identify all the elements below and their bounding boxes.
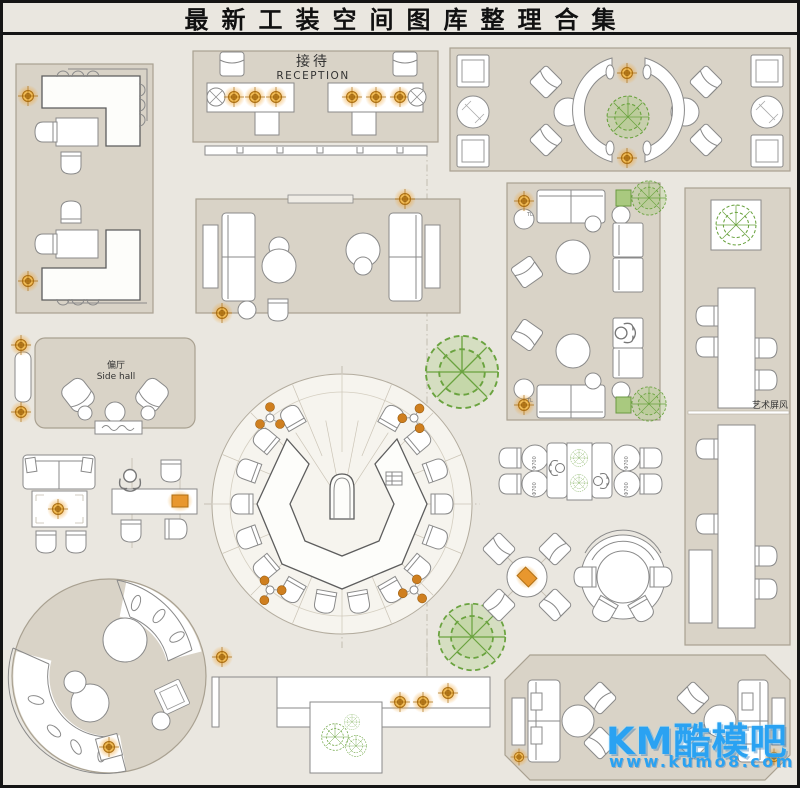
- downlight-icon: [394, 188, 416, 210]
- side-table: [512, 698, 525, 745]
- downlight-icon: [223, 86, 245, 108]
- zone-right-column: 艺术屏风: [685, 188, 790, 645]
- round-table: [751, 96, 783, 128]
- long-table: [718, 425, 755, 628]
- sofa: [222, 213, 255, 301]
- counter: [277, 677, 490, 727]
- booth-bench: [592, 443, 612, 498]
- chair: [650, 567, 672, 587]
- dining-table: [597, 551, 649, 603]
- tl-label: TL: [526, 212, 533, 218]
- downlight-icon: [365, 86, 387, 108]
- bench: [15, 352, 31, 402]
- fan-symbol: [207, 88, 225, 106]
- table-size-label: Φ700: [624, 482, 630, 495]
- table-lamp-icon: [513, 190, 535, 212]
- chair: [35, 234, 57, 254]
- art-screen: [688, 411, 789, 414]
- zone-reception: 接待 RECEPTION: [193, 51, 438, 155]
- zone-square-dining: [482, 532, 572, 622]
- chair: [640, 474, 662, 494]
- chair: [61, 201, 81, 223]
- chair: [755, 579, 777, 599]
- armchair: [751, 55, 783, 87]
- chair: [696, 337, 718, 357]
- stool: [105, 402, 125, 422]
- downlight-icon: [10, 334, 32, 356]
- coffee-table: [262, 249, 296, 283]
- downlight-icon: [389, 691, 411, 713]
- zone-office-topleft: [16, 64, 153, 313]
- plant: [632, 181, 666, 215]
- floorplan-collage-page: 最新工装空间图库整理合集: [0, 0, 800, 788]
- sofa: [389, 213, 422, 301]
- downlight-icon: [98, 736, 120, 758]
- zone-side-hall: 偏厅 Side hall: [10, 334, 195, 434]
- downlight-icon: [341, 86, 363, 108]
- downlight-icon: [211, 646, 233, 668]
- chair: [66, 531, 86, 553]
- chair: [755, 370, 777, 390]
- partition: [212, 677, 219, 727]
- zone-round-dining: [574, 530, 672, 624]
- lectern: [386, 472, 402, 485]
- downlight-icon: [265, 86, 287, 108]
- downlight-icon: [510, 748, 529, 767]
- chair: [574, 567, 596, 587]
- zone-booth-dining: Φ700 Φ700 Φ700 Φ700: [499, 443, 662, 500]
- chair: [755, 546, 777, 566]
- downlight-icon: [17, 270, 39, 292]
- page-title: 最新工装空间图库整理合集: [3, 3, 797, 35]
- downlight-icon: [244, 86, 266, 108]
- zone-lounge-topright: [450, 48, 790, 171]
- side-table: [203, 225, 218, 288]
- reception-label-cn: 接待: [296, 53, 330, 70]
- chair: [499, 448, 521, 468]
- chair: [431, 494, 453, 514]
- return-desk: [56, 230, 98, 258]
- armchair: [751, 135, 783, 167]
- sofa: [537, 385, 605, 418]
- round-table: [103, 618, 147, 662]
- plant: [607, 96, 649, 138]
- zone-desk-left: [112, 458, 197, 548]
- zone-circle-lounge: [8, 579, 206, 773]
- chair: [165, 519, 187, 539]
- downlight-icon: [437, 682, 459, 704]
- chair: [121, 520, 141, 542]
- chair: [61, 152, 81, 174]
- table-size-label: Φ700: [532, 456, 538, 469]
- downlight-icon: [47, 498, 69, 520]
- round-table: [556, 334, 590, 368]
- downlight-icon: [17, 85, 39, 107]
- round-table: [562, 705, 594, 737]
- chair: [640, 448, 662, 468]
- chair: [696, 514, 718, 534]
- table-lamp-icon: [167, 490, 193, 512]
- round-table: [457, 96, 489, 128]
- person-figure: [120, 470, 141, 492]
- planter-box: [616, 397, 631, 413]
- chair: [36, 531, 56, 553]
- downlight-icon: [616, 62, 638, 84]
- downlight-icon: [211, 302, 233, 324]
- reception-label-en: RECEPTION: [276, 70, 349, 82]
- side-hall-label-cn: 偏厅: [107, 359, 125, 371]
- armchair: [393, 52, 417, 76]
- fan-symbol: [408, 88, 426, 106]
- chair: [161, 460, 181, 482]
- chair: [696, 439, 718, 459]
- zone-sofa-lounge-middle: [196, 188, 460, 324]
- chair: [231, 494, 253, 514]
- long-table: [718, 288, 755, 408]
- armchair: [457, 135, 489, 167]
- plant: [632, 387, 666, 421]
- tree: [426, 336, 498, 408]
- table-size-label: Φ700: [624, 456, 630, 469]
- watermark-url: www.kumo8.com: [609, 752, 795, 771]
- return-desk: [56, 118, 98, 146]
- chair: [696, 306, 718, 326]
- zone-sofa-set-left: [23, 455, 95, 553]
- chair: [35, 122, 57, 142]
- downlight-icon: [616, 147, 638, 169]
- zone-circular-conference: [204, 366, 480, 648]
- floor-plan-graphic: 接待 RECEPTION: [0, 0, 800, 788]
- tl-label: TL: [526, 398, 533, 404]
- downlight-icon: [10, 401, 32, 423]
- table-size-label: Φ700: [532, 482, 538, 495]
- coffee-table: [354, 257, 372, 275]
- zone-lounge-midright: TL TL: [507, 181, 666, 421]
- side-hall-label-en: Side hall: [97, 372, 136, 382]
- round-table: [556, 240, 590, 274]
- chair: [755, 338, 777, 358]
- side-table: [425, 225, 440, 288]
- planter-box: [616, 190, 631, 206]
- armchair: [457, 55, 489, 87]
- planter-square: [310, 702, 382, 773]
- armchair: [220, 52, 244, 76]
- planter: [567, 443, 592, 500]
- downlight-icon: [412, 691, 434, 713]
- chair: [499, 474, 521, 494]
- sofa: [528, 680, 560, 762]
- sideboard: [689, 550, 712, 623]
- chair: [268, 299, 288, 321]
- art-screen-label: 艺术屏风: [752, 399, 788, 411]
- bench: [205, 146, 427, 155]
